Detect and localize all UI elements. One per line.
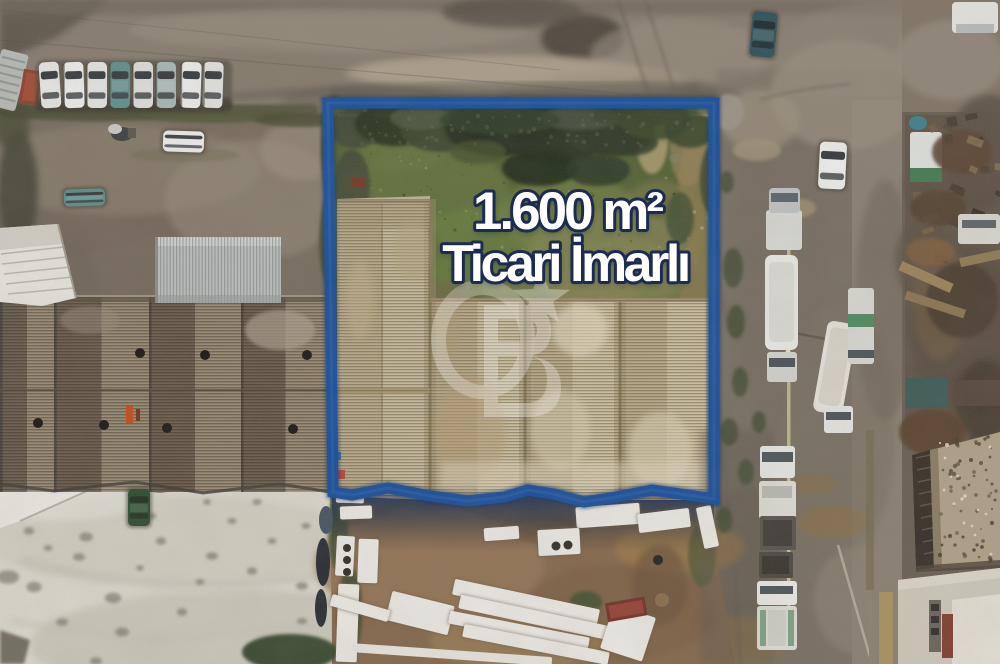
svg-text:1.600 m²: 1.600 m² (473, 182, 663, 241)
svg-text:Ticari İmarlı: Ticari İmarlı (442, 235, 688, 293)
